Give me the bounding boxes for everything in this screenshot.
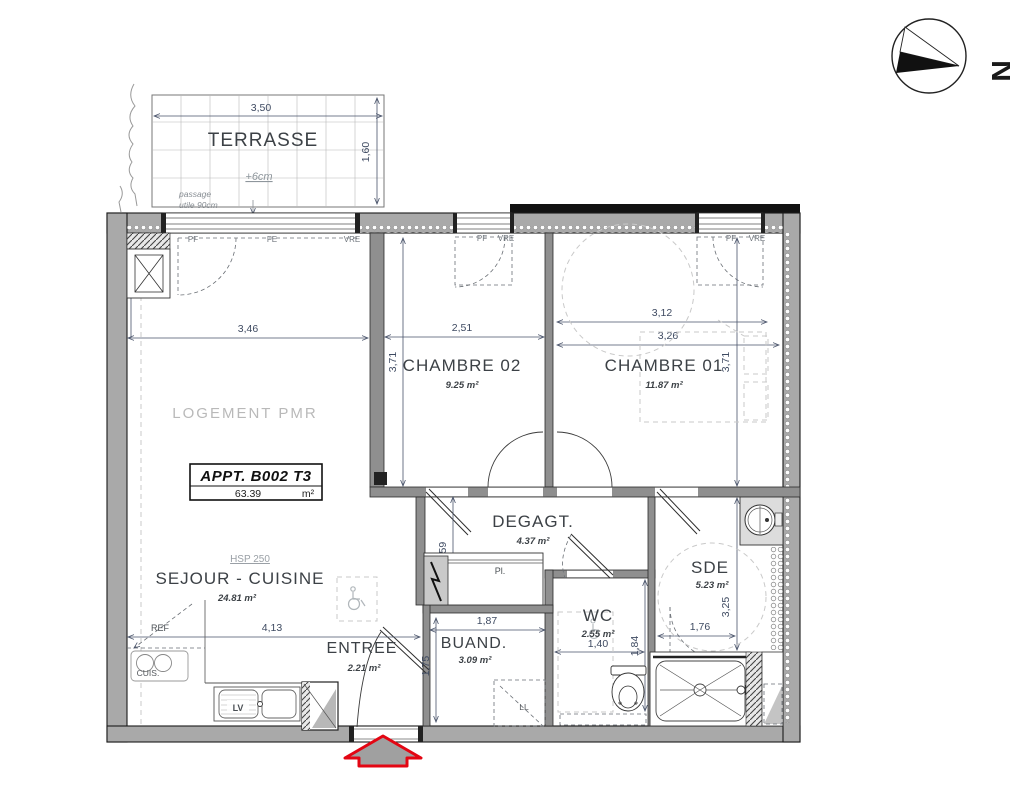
lintel-band: [510, 204, 800, 213]
ceiling-height-note: HSP 250: [230, 554, 270, 565]
insulation-sde: [770, 547, 783, 650]
apartment-id: APPT. B002 T3: [199, 468, 311, 485]
window-type-label: PF: [188, 235, 198, 244]
grab-bar: [560, 714, 646, 725]
kitchen-sink: [214, 687, 300, 721]
window-type-label: VRE: [498, 234, 514, 243]
site-boundary-squiggle: [119, 84, 137, 212]
room-label-sejour: SEJOUR - CUISINE: [155, 569, 324, 588]
cooktop-label: CUIS.: [137, 668, 160, 678]
room-area-wc: 2.55 m²: [581, 629, 616, 640]
terrace-height-dim: 1,60: [360, 142, 372, 163]
terrace-bay-window: PF FE VRE: [161, 213, 360, 295]
floor-plan: 3,50 TERRASSE 1,60 +6cm passage utile 90…: [0, 0, 1010, 800]
tall-unit: [302, 682, 338, 730]
window-type-label: PF: [477, 234, 487, 243]
washbasin: [740, 497, 783, 545]
room-area-buanderie: 3.09 m²: [459, 655, 493, 666]
placard: [424, 553, 543, 605]
room-label-chambre02: CHAMBRE 02: [403, 356, 522, 375]
window-type-label: VRE: [749, 234, 765, 243]
terrace-label: TERRASSE: [208, 130, 318, 151]
dim-label: 1,75: [420, 656, 432, 677]
dim-label: 3,25: [720, 597, 732, 618]
room-area-sejour: 24.81 m²: [217, 593, 257, 604]
terrace-width-dim: 3,50: [251, 102, 272, 114]
room-label-chambre01: CHAMBRE 01: [605, 356, 724, 375]
terrace: 3,50 TERRASSE 1,60 +6cm passage utile 90…: [152, 95, 384, 214]
room-label-buanderie: BUAND.: [441, 635, 507, 652]
apartment-area: 63.39: [235, 488, 261, 500]
window-type-label: VRE: [344, 235, 360, 244]
window-type-label: FE: [267, 235, 277, 244]
apartment-title-box: APPT. B002 T3 63.39 m²: [190, 464, 322, 500]
dim-label: 4,13: [262, 622, 283, 634]
shower: [650, 652, 751, 726]
north-label: N: [985, 60, 1010, 82]
column: [374, 472, 387, 485]
shower-valve: [737, 686, 745, 694]
dim-label: 3,46: [238, 323, 259, 335]
room-area-chambre02: 9.25 m²: [446, 380, 480, 391]
dim-label: 3,12: [652, 307, 673, 319]
floor-plan-drawing: 3,50 TERRASSE 1,60 +6cm passage utile 90…: [0, 0, 1010, 800]
room-area-degagement: 4.37 m²: [516, 536, 551, 547]
faucet: [258, 702, 263, 707]
passage-note-line1: passage: [178, 189, 211, 199]
room-area-chambre01: 11.87 m²: [645, 380, 683, 391]
unit-type-label: LOGEMENT PMR: [172, 405, 317, 422]
fridge-label: REF: [151, 623, 170, 633]
room-label-sde: SDE: [691, 558, 729, 577]
dim-label: 3,71: [387, 352, 399, 373]
toilet: [611, 666, 646, 711]
passage-note-line2: utile 90cm: [179, 200, 218, 210]
water-heater-closet: [746, 652, 783, 726]
apartment-area-unit: m²: [302, 488, 315, 500]
chambre01-window: PF VRE: [695, 213, 765, 287]
room-label-entree: ENTREE: [327, 640, 398, 657]
room-label-degagement: DEGAGT.: [492, 512, 574, 531]
room-area-entree: 2.21 m²: [347, 663, 382, 674]
room-label-wc: WC: [583, 606, 613, 625]
room-area-sde: 5.23 m²: [696, 580, 730, 591]
washing-machine-label: LL: [519, 702, 529, 712]
window-type-label: PF: [726, 234, 736, 243]
dim-label: 1,84: [629, 636, 641, 657]
chambre02-window: PF VRE: [453, 213, 514, 287]
dim-label: 1,76: [690, 621, 711, 633]
wheelchair-icon: [349, 587, 366, 610]
insulation-right: [784, 233, 791, 723]
wheelchair-zone-sejour: [337, 577, 377, 621]
dishwasher-label: LV: [233, 703, 244, 713]
north-arrow-icon: N: [892, 19, 1010, 93]
technical-shaft: [127, 233, 170, 298]
placard-label: Pl.: [495, 566, 506, 576]
dim-label: 2,51: [452, 322, 473, 334]
dim-label: 1,87: [477, 615, 498, 627]
terrace-level-note: +6cm: [245, 171, 272, 183]
